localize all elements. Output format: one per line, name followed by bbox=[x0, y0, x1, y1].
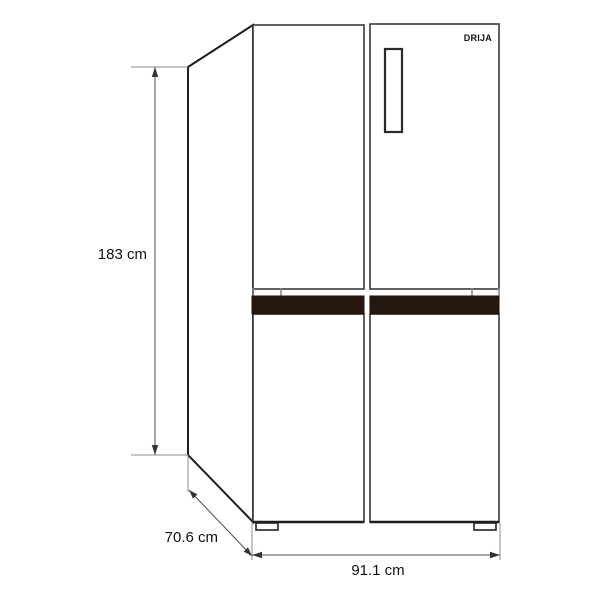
dimension-width: 91.1 cm bbox=[252, 523, 500, 579]
height-label: 183 cm bbox=[98, 246, 147, 263]
width-label: 91.1 cm bbox=[351, 562, 404, 579]
handle-band-left bbox=[252, 296, 364, 314]
foot-left bbox=[256, 523, 278, 530]
dimension-height: 183 cm bbox=[98, 67, 188, 455]
lower-left-door bbox=[253, 314, 364, 522]
side-panel bbox=[188, 25, 253, 522]
width-arrow-right bbox=[490, 552, 500, 558]
upper-left-door bbox=[253, 25, 364, 289]
lower-right-door bbox=[370, 314, 499, 522]
width-arrow-left bbox=[252, 552, 262, 558]
brand-logo: DRIJA bbox=[464, 33, 493, 43]
depth-label: 70.6 cm bbox=[165, 529, 218, 546]
refrigerator-dimension-diagram: DRIJA 183 cm 70.6 cm 91.1 cm bbox=[0, 0, 600, 600]
refrigerator-drawing: DRIJA bbox=[188, 24, 499, 530]
height-arrow-up bbox=[152, 67, 158, 77]
diagram-canvas: DRIJA 183 cm 70.6 cm 91.1 cm bbox=[0, 0, 600, 600]
handle-band-right bbox=[370, 296, 499, 314]
door-handle-recess bbox=[385, 49, 402, 132]
foot-right bbox=[474, 523, 496, 530]
height-arrow-down bbox=[152, 445, 158, 455]
